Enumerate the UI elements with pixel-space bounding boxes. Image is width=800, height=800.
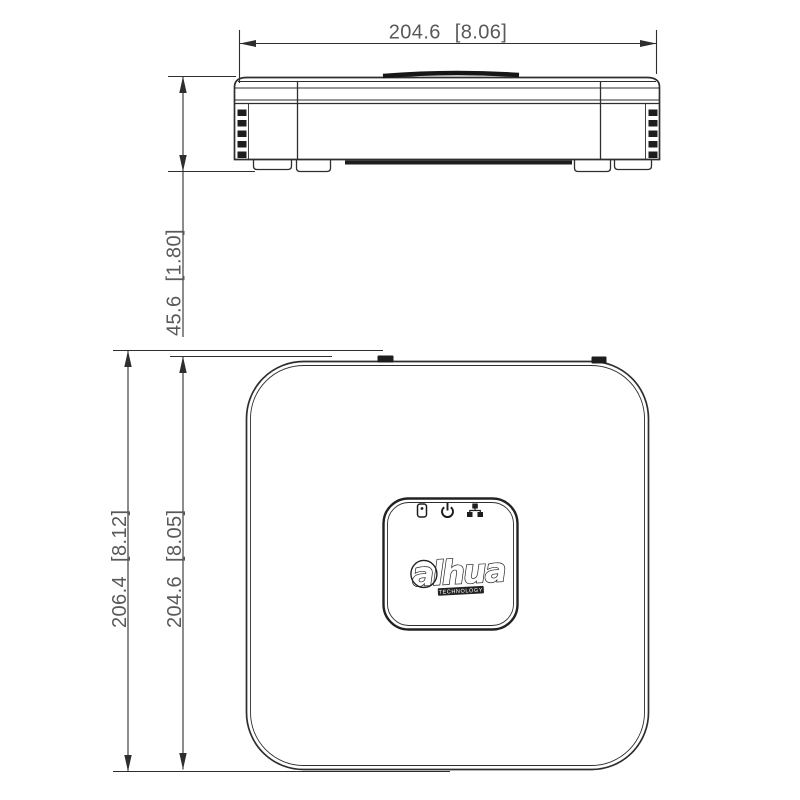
latch-tab-left <box>378 356 394 363</box>
latch-tab-right <box>592 357 607 364</box>
front-height-label: 45.6 [1.80] <box>164 229 186 336</box>
front-width-label: 204.6 [8.06] <box>389 22 507 44</box>
technical-drawing: 204.6 [8.06] <box>0 0 800 800</box>
background <box>0 0 800 800</box>
top-body-label: 204.6 [8.05] <box>164 510 186 628</box>
bottom-strip <box>345 161 572 165</box>
top-overall-label: 206.4 [8.12] <box>109 510 131 628</box>
